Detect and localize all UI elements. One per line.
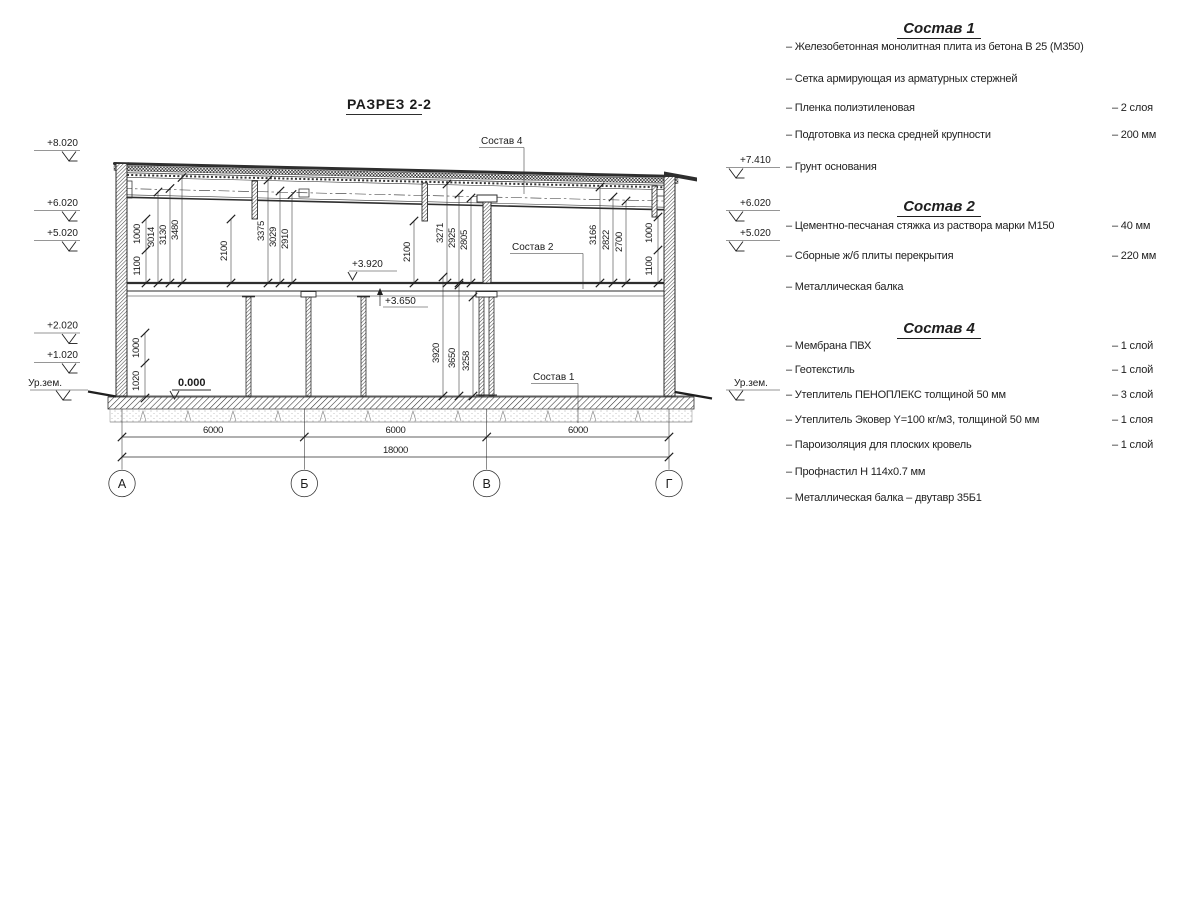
dim-label: 2100 — [219, 241, 230, 261]
blind-area-left — [88, 392, 116, 397]
legend-item: – Грунт основания — [786, 161, 1198, 173]
dim-label: 1100 — [132, 256, 143, 275]
benchmark-label: +5.020 — [740, 228, 771, 239]
benchmarks-right: +7.410 +6.020 +5.020 Ур.зем. — [726, 155, 780, 400]
wall-left — [116, 164, 127, 397]
legend-title-sostav-4: Состав 4 — [897, 320, 981, 339]
level-3920: +3.920 — [352, 259, 383, 270]
dim-span: 6000 — [386, 425, 406, 436]
drawing-sheet: РАЗРЕЗ 2-2 — [0, 0, 1200, 900]
dim-label: 2700 — [614, 232, 625, 252]
ground-slab — [88, 392, 712, 423]
dim-label: 2910 — [280, 229, 291, 249]
drawing-title: РАЗРЕЗ 2-2 — [346, 96, 432, 115]
axis-bubbles: А Б В Г — [109, 470, 682, 496]
materials-legend: Состав 1 – Железобетонная монолитная пли… — [780, 0, 1198, 530]
dim-label: 3166 — [588, 225, 599, 245]
dim-span: 6000 — [568, 425, 588, 436]
legend-title-sostav-2: Состав 2 — [897, 198, 981, 217]
section-title: РАЗРЕЗ 2-2 — [347, 96, 432, 112]
legend-item: – Профнастил Н 114х0.7 мм — [786, 466, 1198, 478]
legend-title-sostav-1: Состав 1 — [897, 20, 981, 39]
legend-item: – Подготовка из песка средней крупности–… — [786, 129, 1198, 141]
benchmarks-left: +8.020 +6.020 +5.020 +2.020 +1.020 Ур.зе… — [28, 138, 88, 400]
ground-level-label: Ур.зем. — [28, 378, 62, 389]
dim-label: 1000 — [132, 224, 143, 244]
column-v-upper — [483, 202, 491, 283]
legend-item: – Цементно-песчаная стяжка из раствора м… — [786, 220, 1198, 232]
roof-assembly — [113, 164, 697, 211]
benchmark-label: +6.020 — [740, 198, 771, 209]
dim-label: 1000 — [644, 223, 655, 243]
legend-item: – Утеплитель ПЕНОПЛЕКС толщиной 50 мм– 3… — [786, 389, 1198, 401]
dim-label: 3130 — [158, 225, 169, 245]
column-v-capital — [477, 195, 497, 202]
benchmark-label: +1.020 — [47, 350, 78, 361]
level-3650: +3.650 — [385, 296, 416, 307]
level-marks: +3.920 +3.650 0.000 — [170, 259, 428, 399]
axis-label-b: Б — [300, 477, 308, 491]
legend-item: – Сборные ж/б плиты перекрытия– 220 мм — [786, 250, 1198, 262]
dim-label: 1020 — [131, 371, 142, 391]
dim-label: 2100 — [402, 242, 413, 262]
benchmark-label: +7.410 — [740, 155, 771, 166]
section-drawing: РАЗРЕЗ 2-2 — [0, 0, 780, 520]
dim-label: 3029 — [268, 227, 279, 247]
dim-label: 1100 — [644, 256, 655, 275]
benchmark-label: +5.020 — [47, 228, 78, 239]
callout-sostav-2: Состав 2 — [512, 242, 554, 253]
legend-item: – Утеплитель Эковер Y=100 кг/м3, толщино… — [786, 414, 1198, 426]
dim-label: 2822 — [601, 230, 612, 250]
dim-label: 3014 — [146, 227, 157, 247]
axis-label-v: В — [483, 477, 491, 491]
legend-item: – Пленка полиэтиленовая– 2 слоя — [786, 102, 1198, 114]
dim-label: 3375 — [256, 221, 267, 241]
dim-label: 3271 — [435, 223, 446, 243]
floor-slab — [127, 283, 664, 296]
level-zero: 0.000 — [178, 377, 206, 389]
callout-sostav-1: Состав 1 — [533, 372, 575, 383]
dim-label: 3650 — [447, 348, 458, 368]
dim-label: 2805 — [459, 230, 470, 250]
dim-label: 3480 — [170, 220, 181, 240]
callout-sostav-4: Состав 4 — [481, 136, 523, 147]
legend-item: – Пароизоляция для плоских кровель– 1 сл… — [786, 439, 1198, 451]
legend-item: – Металлическая балка — [786, 281, 1198, 293]
dim-total: 18000 — [383, 445, 408, 456]
legend-item: – Мембрана ПВХ– 1 слой — [786, 340, 1198, 352]
dim-span: 6000 — [203, 425, 223, 436]
legend-item: – Сетка армирующая из арматурных стержне… — [786, 73, 1198, 85]
benchmark-label: +2.020 — [47, 321, 78, 332]
legend-item: – Геотекстиль– 1 слой — [786, 364, 1198, 376]
legend-item: – Железобетонная монолитная плита из бет… — [786, 41, 1198, 53]
benchmark-label: +6.020 — [47, 198, 78, 209]
dim-label: 2925 — [447, 228, 458, 248]
benchmark-label: +8.020 — [47, 138, 78, 149]
dim-label: 1000 — [131, 338, 142, 358]
legend-item: – Металлическая балка – двутавр 35Б1 — [786, 492, 1198, 504]
axis-label-a: А — [118, 477, 127, 491]
dim-label: 3258 — [461, 351, 472, 371]
axis-label-g: Г — [666, 477, 673, 491]
ground-level-label: Ур.зем. — [734, 378, 768, 389]
upper-dimensions: 1000 1100 3014 3130 3480 2100 3375 3029 … — [132, 173, 662, 287]
wall-right — [664, 177, 675, 397]
dim-label: 3920 — [431, 343, 442, 363]
